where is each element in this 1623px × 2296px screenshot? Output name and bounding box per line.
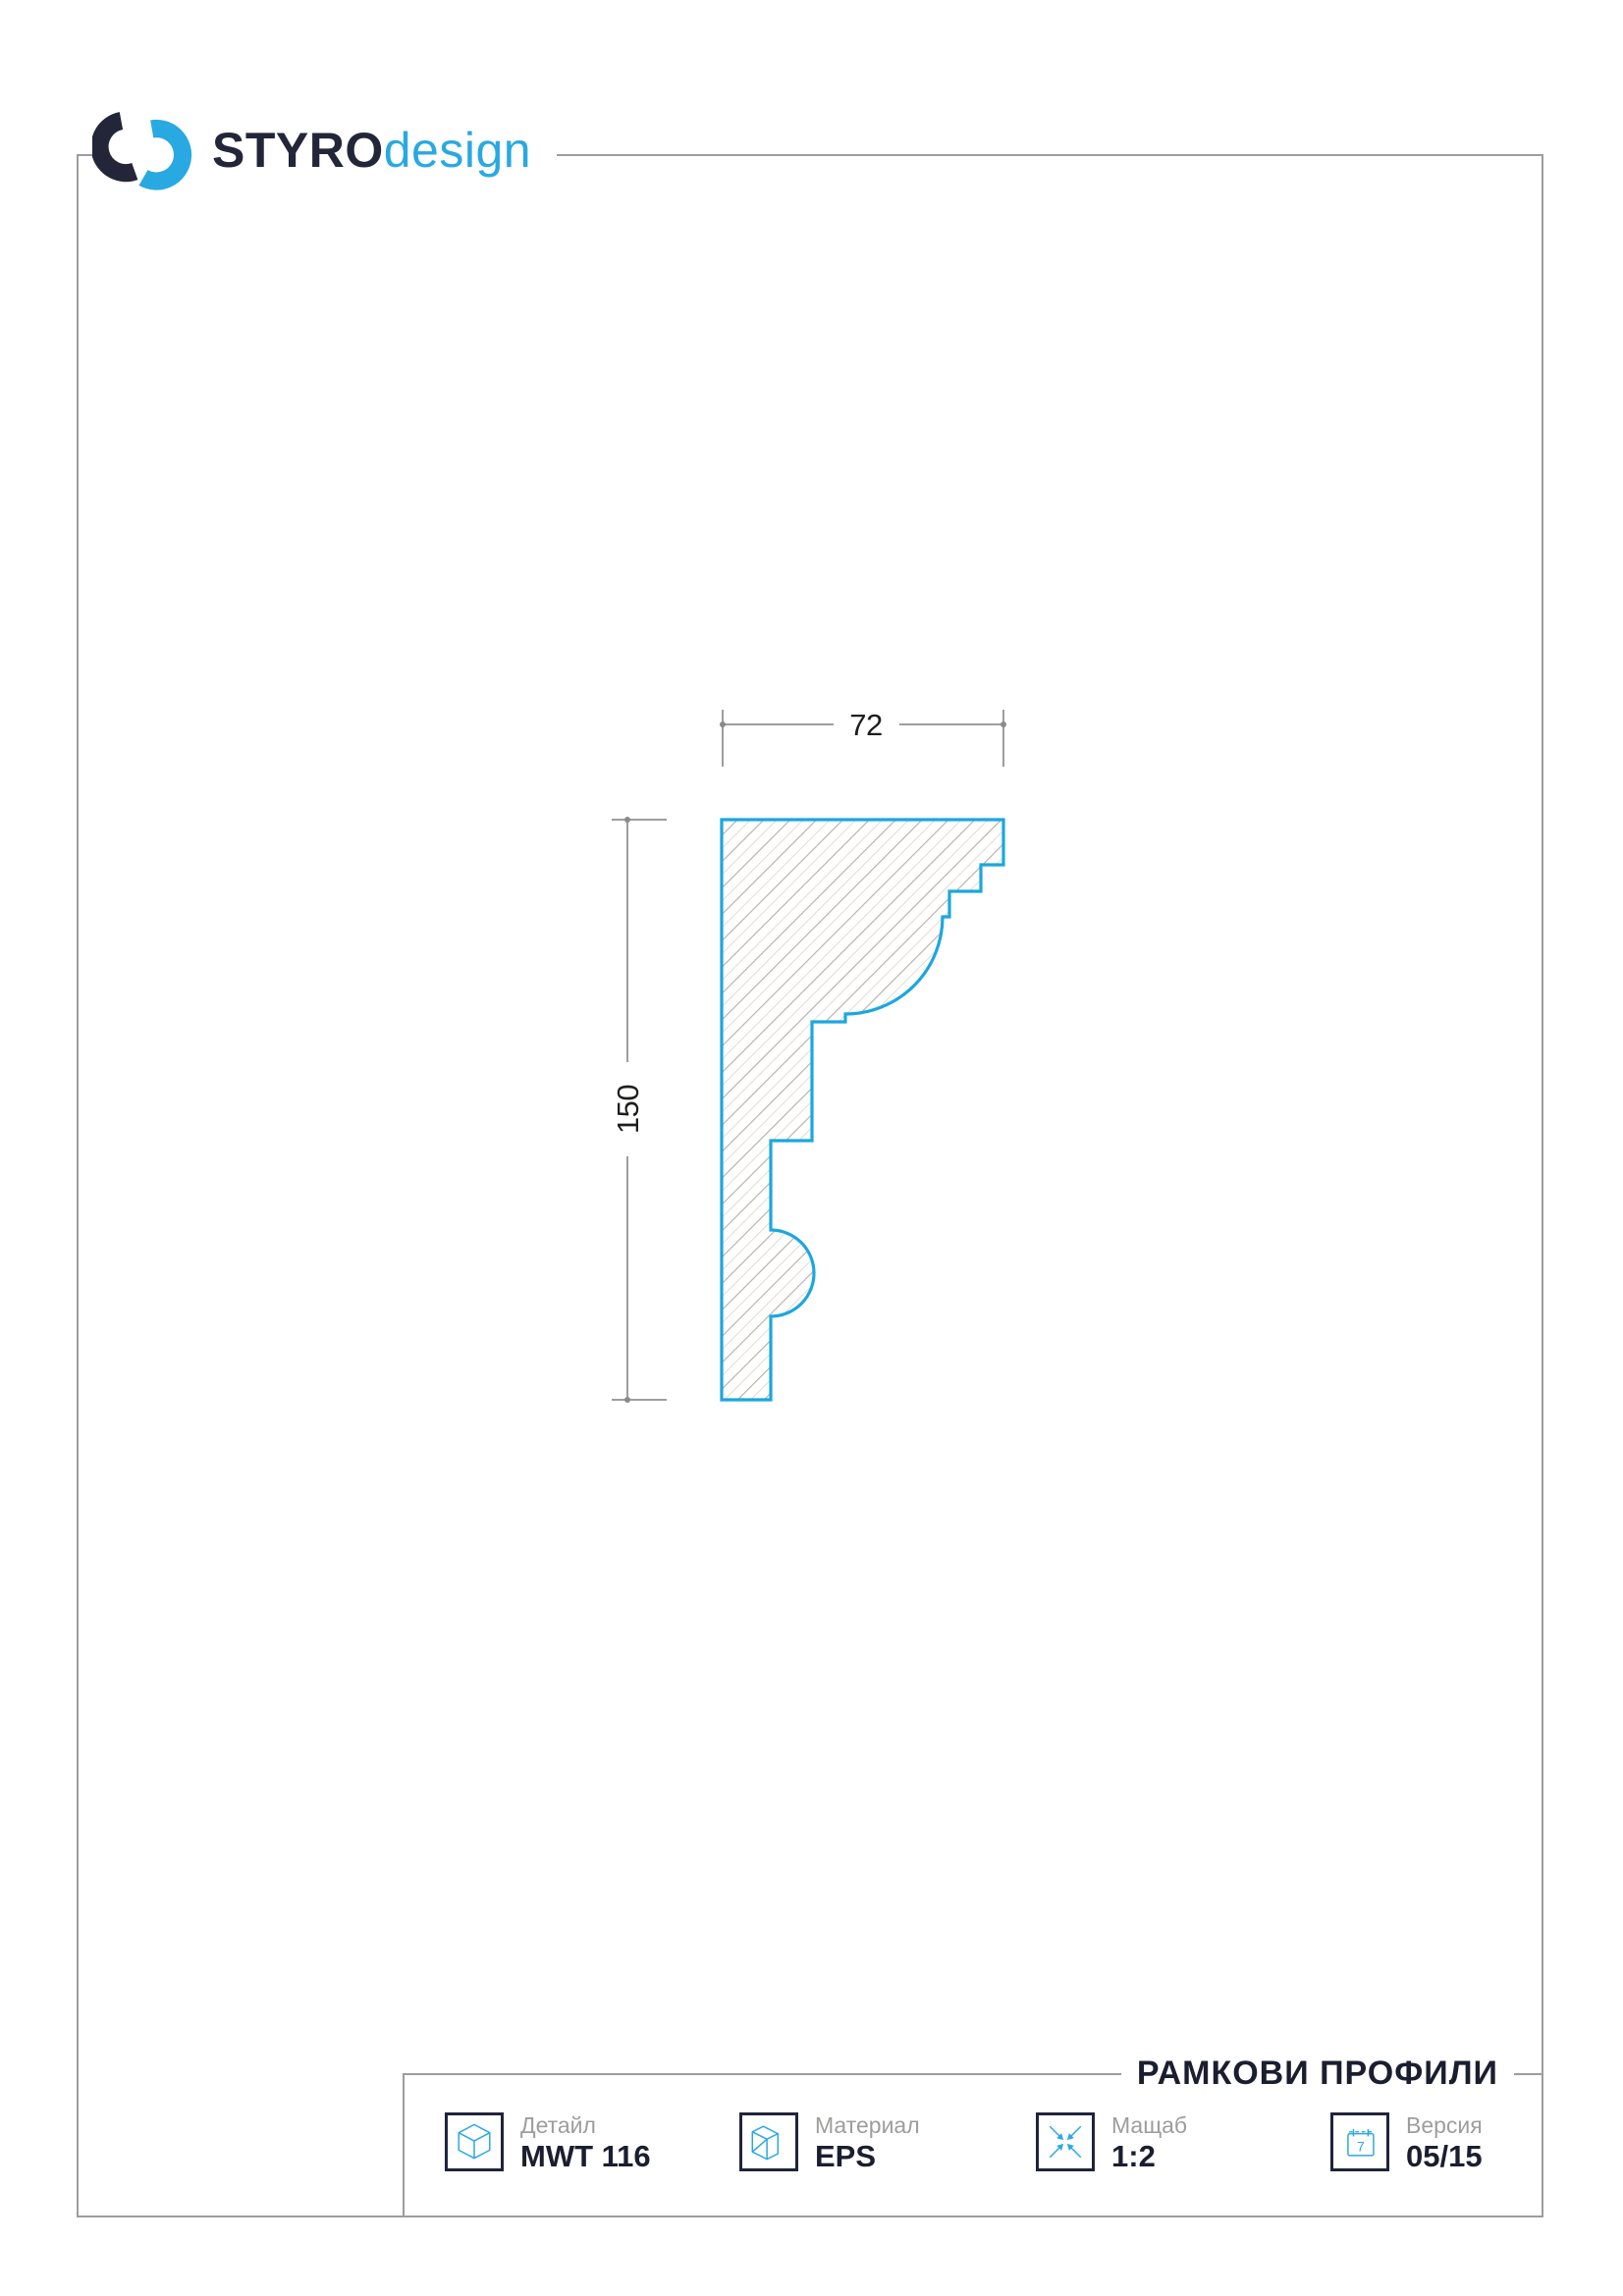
- height-dimension-label: 150: [611, 1085, 645, 1134]
- brand-wordmark: STYROdesign: [212, 126, 531, 175]
- dim-tick-dot: [1001, 721, 1006, 727]
- version-label: Версия: [1406, 2112, 1483, 2138]
- version-value: 05/15: [1406, 2140, 1483, 2173]
- brand-logo: STYROdesign: [92, 104, 557, 196]
- dim-tick-dot: [624, 1397, 630, 1403]
- version-icon-box: 7: [1330, 2112, 1389, 2171]
- detail-label: Детайл: [520, 2112, 651, 2138]
- block-icon: [743, 2116, 794, 2167]
- scale-label: Мащаб: [1111, 2112, 1187, 2138]
- version-field: 7 Версия 05/15: [1330, 2112, 1483, 2173]
- profile-drawing: 72 150: [0, 0, 1623, 2296]
- brand-name-light: design: [384, 123, 531, 178]
- sheet-title: РАМКОВИ ПРОФИЛИ: [1121, 2051, 1514, 2096]
- scale-icon-box: [1036, 2112, 1095, 2171]
- scale-field: Мащаб 1:2: [1036, 2112, 1187, 2173]
- calendar-digit: 7: [1357, 2138, 1365, 2154]
- detail-field: Детайл MWT 116: [445, 2112, 651, 2173]
- scale-icon: [1040, 2116, 1091, 2167]
- detail-icon-box: [445, 2112, 504, 2171]
- material-value: EPS: [815, 2140, 920, 2173]
- detail-value: MWT 116: [520, 2140, 651, 2173]
- scale-value: 1:2: [1111, 2140, 1187, 2173]
- profile-outline: [722, 820, 1003, 1400]
- dim-tick-dot: [624, 817, 630, 823]
- styrodesign-logo-icon: [92, 108, 194, 192]
- material-icon-box: [739, 2112, 798, 2171]
- cube-icon: [449, 2116, 500, 2167]
- brand-name-bold: STYRO: [212, 123, 384, 178]
- calendar-icon: 7: [1334, 2116, 1385, 2167]
- material-label: Материал: [815, 2112, 920, 2138]
- dim-tick-dot: [720, 721, 726, 727]
- material-field: Материал EPS: [739, 2112, 920, 2173]
- datasheet-page: STYROdesign 72 1: [0, 0, 1623, 2296]
- width-dimension-label: 72: [849, 708, 882, 742]
